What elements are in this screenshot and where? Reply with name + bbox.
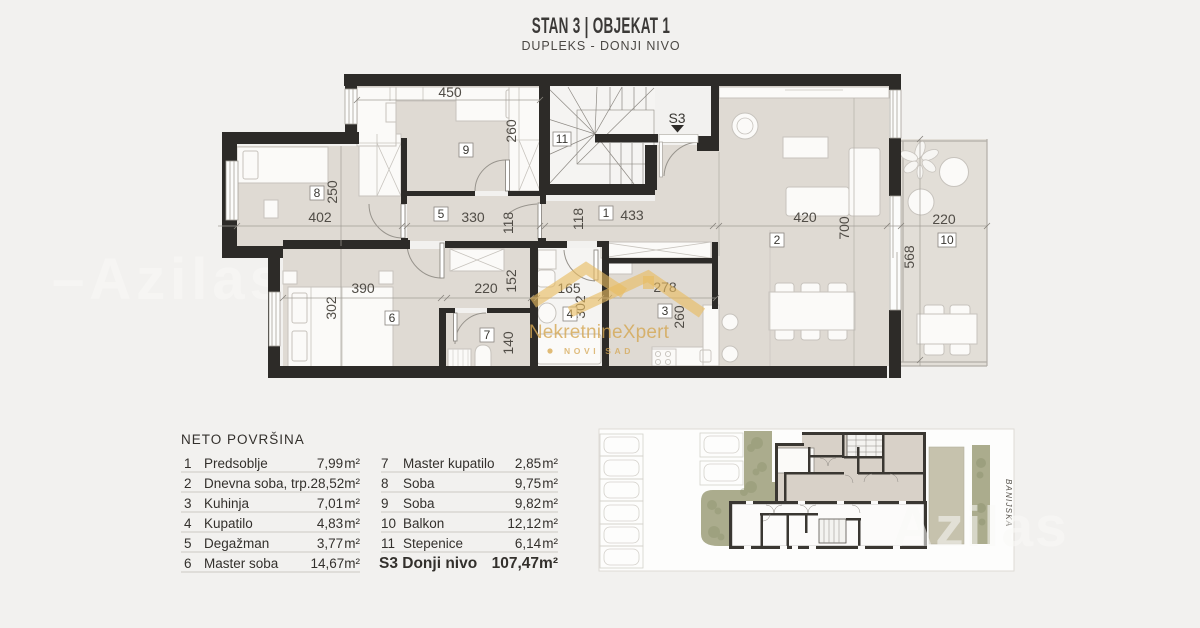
svg-text:700: 700 bbox=[836, 216, 852, 240]
svg-text:S3: S3 bbox=[668, 110, 685, 126]
svg-text:2,85 m²: 2,85 m² bbox=[515, 456, 559, 471]
svg-text:Master kupatilo: Master kupatilo bbox=[403, 456, 495, 471]
svg-text:7: 7 bbox=[484, 328, 491, 342]
svg-text:1: 1 bbox=[184, 456, 192, 471]
svg-text:8: 8 bbox=[381, 476, 389, 491]
svg-text:402: 402 bbox=[308, 209, 332, 225]
svg-text:Degažman: Degažman bbox=[204, 536, 269, 551]
svg-text:Soba: Soba bbox=[403, 476, 435, 491]
svg-text:DUPLEKS - DONJI NIVO: DUPLEKS - DONJI NIVO bbox=[522, 39, 681, 53]
svg-text:Master soba: Master soba bbox=[204, 556, 279, 571]
svg-text:390: 390 bbox=[351, 280, 375, 296]
svg-text:Dnevna soba, trp.: Dnevna soba, trp. bbox=[204, 476, 311, 491]
svg-text:3: 3 bbox=[662, 304, 669, 318]
svg-text:2: 2 bbox=[184, 476, 192, 491]
svg-text:4: 4 bbox=[184, 516, 192, 531]
svg-text:3,77 m²: 3,77 m² bbox=[317, 536, 361, 551]
svg-text:6: 6 bbox=[389, 311, 396, 325]
svg-text:3: 3 bbox=[184, 496, 192, 511]
svg-text:10: 10 bbox=[940, 233, 954, 247]
svg-text:118: 118 bbox=[500, 212, 516, 235]
svg-text:12,12 m²: 12,12 m² bbox=[507, 516, 558, 531]
svg-text:NETO POVRŠINA: NETO POVRŠINA bbox=[181, 432, 305, 447]
svg-text:NekretnineXpert: NekretnineXpert bbox=[529, 322, 670, 343]
svg-text:5: 5 bbox=[184, 536, 192, 551]
svg-text:Kuhinja: Kuhinja bbox=[204, 496, 250, 511]
svg-text:9: 9 bbox=[463, 143, 470, 157]
svg-text:118: 118 bbox=[570, 208, 586, 231]
svg-text:11: 11 bbox=[556, 132, 569, 146]
svg-text:14,67m²: 14,67m² bbox=[310, 556, 360, 571]
svg-text:Stepenice: Stepenice bbox=[403, 536, 463, 551]
svg-text:2: 2 bbox=[774, 233, 781, 247]
svg-text:9: 9 bbox=[381, 496, 389, 511]
svg-text:260: 260 bbox=[503, 119, 519, 143]
svg-text:420: 420 bbox=[793, 209, 817, 225]
svg-text:Balkon: Balkon bbox=[403, 516, 444, 531]
svg-text:Predsoblje: Predsoblje bbox=[204, 456, 268, 471]
svg-text:STAN 3 | OBJEKAT 1: STAN 3 | OBJEKAT 1 bbox=[532, 12, 670, 37]
svg-text:107,47m²: 107,47m² bbox=[492, 555, 558, 572]
svg-text:5: 5 bbox=[438, 207, 445, 221]
svg-text:220: 220 bbox=[932, 211, 956, 227]
svg-text:7,99 m²: 7,99 m² bbox=[317, 456, 361, 471]
svg-text:9,82 m²: 9,82 m² bbox=[515, 496, 559, 511]
svg-text:S3 Donji nivo: S3 Donji nivo bbox=[379, 555, 477, 572]
svg-text:7: 7 bbox=[381, 456, 389, 471]
svg-text:152: 152 bbox=[503, 269, 519, 293]
svg-text:11: 11 bbox=[381, 536, 395, 551]
svg-text:Kupatilo: Kupatilo bbox=[204, 516, 253, 531]
svg-text:220: 220 bbox=[474, 280, 498, 296]
svg-text:330: 330 bbox=[461, 209, 485, 225]
svg-text:260: 260 bbox=[671, 305, 687, 329]
svg-text:433: 433 bbox=[620, 207, 644, 223]
svg-text:6: 6 bbox=[184, 556, 192, 571]
svg-text:7,01 m²: 7,01 m² bbox=[317, 496, 361, 511]
svg-text:568: 568 bbox=[901, 245, 917, 269]
svg-text:NOVI SAD: NOVI SAD bbox=[564, 346, 634, 356]
svg-text:8: 8 bbox=[314, 186, 321, 200]
svg-text:Soba: Soba bbox=[403, 496, 435, 511]
svg-text:Azilas: Azilas bbox=[892, 495, 1069, 559]
svg-text:6,14 m²: 6,14 m² bbox=[515, 536, 559, 551]
svg-text:450: 450 bbox=[438, 84, 462, 100]
svg-text:28,52m²: 28,52m² bbox=[310, 476, 360, 491]
svg-text:9,75 m²: 9,75 m² bbox=[515, 476, 559, 491]
svg-text:140: 140 bbox=[500, 331, 516, 355]
svg-text:250: 250 bbox=[324, 180, 340, 204]
svg-text:302: 302 bbox=[323, 296, 339, 320]
svg-text:4,83 m²: 4,83 m² bbox=[317, 516, 361, 531]
svg-text:10: 10 bbox=[381, 516, 396, 531]
svg-text:1: 1 bbox=[603, 206, 610, 220]
